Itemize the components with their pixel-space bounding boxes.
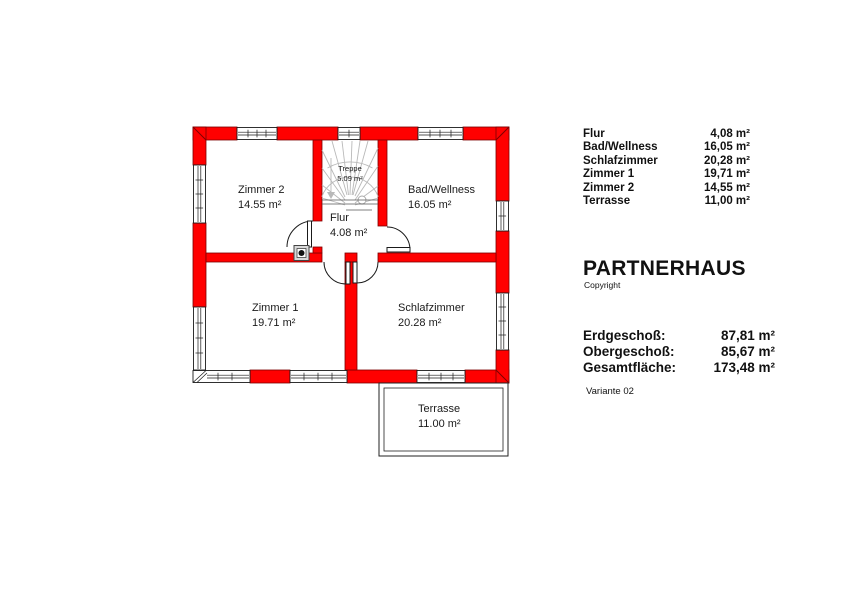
wall-top-3: [360, 127, 418, 140]
wall-right-3: [496, 350, 509, 383]
room-name: Zimmer 1: [252, 302, 298, 314]
room-area: 20.28 m²: [398, 317, 442, 329]
room-area: 14.55 m²: [238, 199, 282, 211]
door-leaf-zimmer1: [346, 262, 350, 284]
room-label-zimmer1: Zimmer 1 19.71 m²: [252, 302, 298, 329]
room-label-treppe: Treppe 5.09 m²: [337, 164, 363, 183]
chimney-icon: [294, 246, 309, 261]
window-north-bad: [418, 128, 463, 140]
legend-value: 4,08 m²: [710, 128, 750, 141]
legend-row: Zimmer 1 19,71 m²: [583, 168, 750, 181]
room-label-terrasse: Terrasse 11.00 m²: [418, 403, 461, 430]
window-south-corner-run: [193, 371, 250, 383]
window-north-treppe: [338, 128, 360, 140]
totals-value: 87,81 m²: [721, 328, 775, 344]
room-area: 4.08 m²: [330, 227, 368, 239]
room-name: Terrasse: [418, 403, 460, 415]
wall-left-2: [193, 223, 206, 307]
wall-zimmer2-flur: [313, 140, 322, 221]
totals-row: Erdgeschoß: 87,81 m²: [583, 328, 775, 344]
legend-row: Bad/Wellness 16,05 m²: [583, 141, 750, 154]
room-name: Bad/Wellness: [408, 184, 476, 196]
room-name: Treppe: [338, 164, 362, 173]
totals-label: Erdgeschoß:: [583, 328, 666, 344]
door-leaf-bad: [387, 248, 410, 253]
floor-area-totals: Erdgeschoß: 87,81 m² Obergeschoß: 85,67 …: [583, 328, 775, 377]
wall-left-1: [193, 127, 206, 165]
legend-value: 14,55 m²: [704, 182, 750, 195]
brand-title: PARTNERHAUS: [583, 258, 746, 280]
totals-value: 85,67 m²: [721, 344, 775, 360]
legend-label: Zimmer 1: [583, 168, 634, 181]
totals-label: Obergeschoß:: [583, 344, 675, 360]
window-north-zimmer2: [237, 128, 277, 140]
wall-top-2: [277, 127, 338, 140]
door-arc-bad: [387, 227, 410, 250]
room-area: 11.00 m²: [418, 418, 461, 430]
stair-direction-arrow-icon: [327, 192, 335, 199]
variant-label: Variante 02: [586, 386, 634, 397]
wall-right-2: [496, 231, 509, 293]
totals-row: Gesamtfläche: 173,48 m²: [583, 360, 775, 376]
legend-row: Zimmer 2 14,55 m²: [583, 182, 750, 195]
window-east-schlafzimmer: [497, 293, 509, 350]
staircase: [322, 141, 378, 205]
legend-value: 19,71 m²: [704, 168, 750, 181]
legend-label: Schlafzimmer: [583, 155, 658, 168]
totals-row: Obergeschoß: 85,67 m²: [583, 344, 775, 360]
legend-row: Schlafzimmer 20,28 m²: [583, 155, 750, 168]
window-west-zimmer2: [194, 165, 206, 223]
floor-plan-page: Zimmer 2 14.55 m² Treppe 5.09 m² Flur 4.…: [0, 0, 841, 595]
room-name: Schlafzimmer: [398, 302, 465, 314]
legend-value: 16,05 m²: [704, 141, 750, 154]
room-area: 16.05 m²: [408, 199, 452, 211]
legend-label: Terrasse: [583, 195, 630, 208]
totals-label: Gesamtfläche:: [583, 360, 676, 376]
door-arc-zimmer1: [324, 262, 346, 284]
stair-landing-lines: [322, 200, 378, 210]
brand-block: PARTNERHAUS Copyright: [583, 258, 746, 290]
wall-bottom-1: [250, 370, 290, 383]
room-label-bad-wellness: Bad/Wellness 16.05 m²: [408, 184, 476, 211]
legend-label: Bad/Wellness: [583, 141, 658, 154]
wall-zimmer2-flur-stub: [313, 247, 322, 253]
legend-row: Flur 4,08 m²: [583, 128, 750, 141]
floor-plan-drawing: Zimmer 2 14.55 m² Treppe 5.09 m² Flur 4.…: [0, 0, 841, 595]
wall-bottom-2: [347, 370, 417, 383]
totals-value: 173,48 m²: [713, 360, 775, 376]
room-name: Zimmer 2: [238, 184, 284, 196]
legend-label: Flur: [583, 128, 605, 141]
window-west-zimmer1: [194, 307, 206, 370]
brand-copyright: Copyright: [584, 281, 746, 290]
legend-value: 11,00 m²: [705, 195, 750, 208]
door-leaf-zimmer2: [308, 221, 312, 247]
room-label-flur: Flur 4.08 m²: [330, 212, 368, 239]
legend-row: Terrasse 11,00 m²: [583, 195, 750, 208]
wall-flur-bad: [378, 140, 387, 226]
room-area: 5.09 m²: [337, 174, 363, 183]
room-name: Flur: [330, 212, 349, 224]
door-leaf-schlafzimmer: [353, 262, 357, 283]
area-legend: Flur 4,08 m² Bad/Wellness 16,05 m² Schla…: [583, 128, 750, 208]
wall-mid-horizontal-right: [378, 253, 496, 262]
window-east-bad: [497, 201, 509, 231]
room-area: 19.71 m²: [252, 317, 296, 329]
wall-mid-horizontal-stub: [345, 253, 357, 262]
window-south-terrasse-door: [417, 371, 465, 383]
room-label-schlafzimmer: Schlafzimmer 20.28 m²: [398, 302, 465, 329]
room-label-zimmer2: Zimmer 2 14.55 m²: [238, 184, 284, 211]
legend-value: 20,28 m²: [704, 155, 750, 168]
door-arc-schlafzimmer: [357, 262, 378, 283]
window-south-zimmer1: [290, 371, 347, 383]
legend-label: Zimmer 2: [583, 182, 634, 195]
